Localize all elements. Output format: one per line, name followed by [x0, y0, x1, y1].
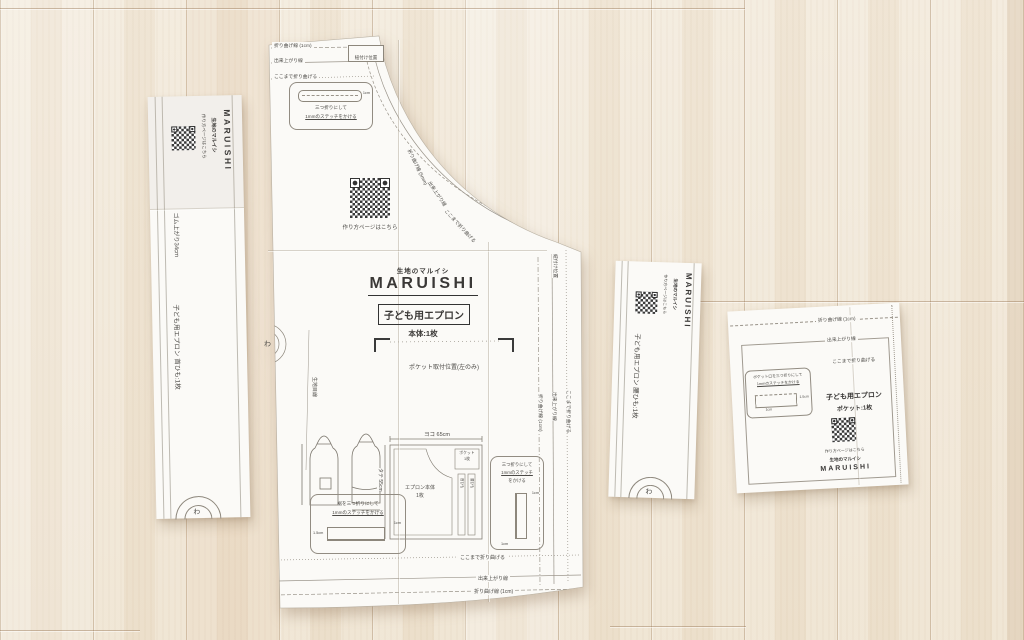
- pocket-corner-bracket: [498, 338, 514, 352]
- side-note-line1: 三つ折りにして: [491, 462, 543, 468]
- hem-instruction-box: 裾を三つ折りにして 1mmのステッチをかける 1.5cm 1cm: [310, 494, 406, 554]
- trifold-note-line1: 三つ折りにして: [290, 105, 372, 111]
- layout-neck-label: 首ひも: [459, 478, 464, 489]
- howto-caption: 作り方ページはこちら: [328, 223, 412, 231]
- hem-note-line1: 裾を三つ折りにして: [311, 501, 405, 507]
- layout-body-count: 1枚: [396, 492, 444, 499]
- brand-logo: MARUISHI: [222, 109, 233, 171]
- layout-width-label: ヨコ 65cm: [400, 430, 474, 438]
- product-name-box: 子ども用エプロン: [378, 304, 470, 325]
- dim-label: 1.5cm: [313, 531, 323, 535]
- fold-mark-label: わ: [264, 339, 271, 349]
- qr-code: [350, 178, 390, 218]
- brand-sub: 生地のマルイシ: [380, 265, 466, 275]
- fold-line-label-bottom: 折り曲げ線 (1cm): [472, 588, 515, 595]
- layout-waist-label: 腰ひも: [469, 478, 474, 489]
- floor-seam: [0, 630, 140, 631]
- stitch-line: [302, 95, 358, 96]
- grain-line-label: 生地目線: [311, 377, 318, 397]
- piece-name-label: 子ども用エプロン 首ひも:1枚: [172, 304, 184, 389]
- pocket-position-label: ポケット取付位置(左のみ): [378, 362, 510, 371]
- fold-mark-label: わ: [645, 487, 652, 497]
- howto-caption: 作り方ページはこちら: [200, 114, 207, 159]
- brand-logo: MARUISHI: [683, 273, 694, 329]
- pattern-piece-main-body: 折り曲げ線 (1cm) 出来上がり線 ここまで折り曲げる 紐付け位置 1cm 三…: [262, 32, 587, 614]
- fold-here-label-right: ここまで折り曲げる: [565, 390, 572, 433]
- pattern-piece-neck-strap: 作り方ページはこちら 生地のマルイシ MARUISHI ゴム上がり34cm 子ど…: [148, 95, 251, 519]
- layout-body-label: エプロン本体: [396, 484, 444, 491]
- side-instruction-box: 三つ折りにして 1mmのステッチ をかける 1cm 1cm: [490, 456, 544, 550]
- fold-line-label: 折り曲げ線 (1cm): [816, 315, 858, 324]
- layout-height-label: タテ 55cm: [377, 468, 384, 492]
- opening-instruction-box: ポケット口を三つ折りにして 1mmのステッチをかける 1.5cm 1cm: [744, 367, 812, 418]
- opening-note-line2: 1mmのステッチをかける: [746, 379, 810, 387]
- side-note-line2: 1mmのステッチ: [491, 470, 543, 476]
- qr-code: [831, 417, 856, 442]
- strap-position-label: 紐付け位置: [355, 55, 378, 60]
- finish-line-label-bottom: 出来上がり線: [476, 575, 510, 582]
- piece-count-label: 本体:1枚: [390, 328, 456, 339]
- photo-scene: 作り方ページはこちら 生地のマルイシ MARUISHI ゴム上がり34cm 子ど…: [0, 0, 1024, 640]
- trifold-note-line2: 1mmのステッチをかける: [290, 114, 372, 120]
- dim-label: 1cm: [501, 542, 508, 546]
- fold-here-label-bottom: ここまで折り曲げる: [458, 554, 507, 561]
- layout-pocket-count: 1枚: [454, 457, 480, 462]
- fold-here-label: ここまで折り曲げる: [272, 73, 319, 80]
- piece-name-label: 子ども用エプロン 腰ひも:1枚: [631, 333, 644, 419]
- pocket-corner-bracket: [374, 338, 390, 352]
- tie-diagram: [298, 90, 362, 102]
- layout-pocket-label: ポケット: [454, 451, 480, 456]
- pocket-diagram: [755, 393, 798, 408]
- strap-position-box: 紐付け位置: [348, 45, 384, 62]
- side-diagram: [515, 493, 527, 539]
- qr-code: [635, 291, 658, 314]
- paper-crease: [488, 242, 489, 602]
- fold-line-label: 折り曲げ線 (1cm): [272, 42, 314, 49]
- floor-seam: [610, 626, 746, 627]
- qr-code: [171, 126, 195, 150]
- elastic-length-label: ゴム上がり34cm: [172, 212, 182, 257]
- dim-label: 1cm: [532, 491, 539, 495]
- dim-label: 1cm: [363, 91, 370, 95]
- finish-line-label: 出来上がり線: [272, 57, 305, 64]
- howto-caption: 作り方ページはこちら: [661, 274, 668, 314]
- brand-sub: 生地のマルイシ: [210, 118, 218, 153]
- trifold-instruction-box: 1cm 三つ折りにして 1mmのステッチをかける: [289, 82, 373, 130]
- paper-crease: [268, 250, 547, 251]
- dim-label: 1cm: [765, 407, 772, 411]
- floor-plank-tint: [1007, 0, 1024, 640]
- finish-line-label-right: 出来上がり線: [551, 392, 558, 421]
- brand-logo: MARUISHI: [368, 275, 478, 296]
- pattern-piece-waist-tie: 作り方ページはこちら 生地のマルイシ MARUISHI 子ども用エプロン 腰ひも…: [608, 261, 701, 500]
- hem-note-line2: 1mmのステッチをかける: [311, 510, 405, 516]
- strap-position-label-right: 紐付け位置: [552, 254, 559, 278]
- floor-seam: [0, 8, 745, 9]
- floor-seam: [698, 301, 1024, 302]
- fold-line-label-right: 折り曲げ線 (1cm): [537, 394, 544, 432]
- fold-mark-label: わ: [193, 507, 200, 517]
- hem-diagram: [327, 527, 385, 541]
- pattern-piece-pocket: 折り曲げ線 (1cm) 出来上がり線 ここまで折り曲げる ポケット口を三つ折りに…: [727, 303, 908, 494]
- fold-line: [730, 317, 898, 327]
- dim-label: 1cm: [394, 521, 401, 525]
- side-note-line3: をかける: [491, 478, 543, 484]
- floor-plank-tint: [0, 0, 93, 640]
- brand-sub: 生地のマルイシ: [671, 278, 678, 310]
